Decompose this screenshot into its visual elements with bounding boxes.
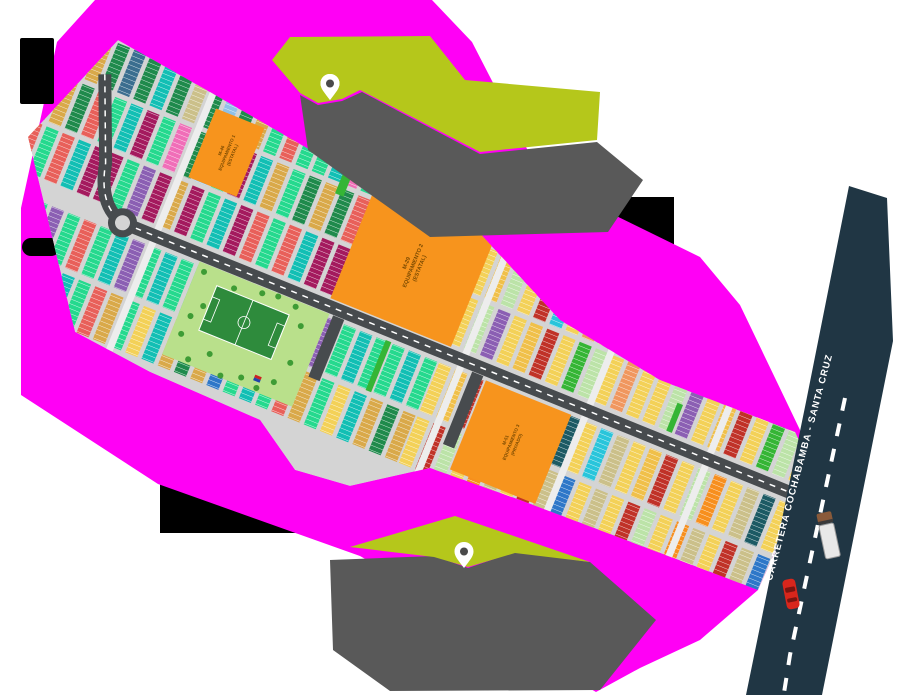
lot-plan-map: M-46 EQUIPAMIENTO 1 (ESTATAL) M-29 EQUIP…	[0, 0, 920, 695]
black-block-top-left	[20, 38, 54, 104]
pin-hole-icon	[326, 80, 334, 88]
roundabout	[108, 208, 137, 237]
pin-hole-icon	[460, 548, 468, 556]
map-canvas: M-46 EQUIPAMIENTO 1 (ESTATAL) M-29 EQUIP…	[0, 0, 920, 695]
